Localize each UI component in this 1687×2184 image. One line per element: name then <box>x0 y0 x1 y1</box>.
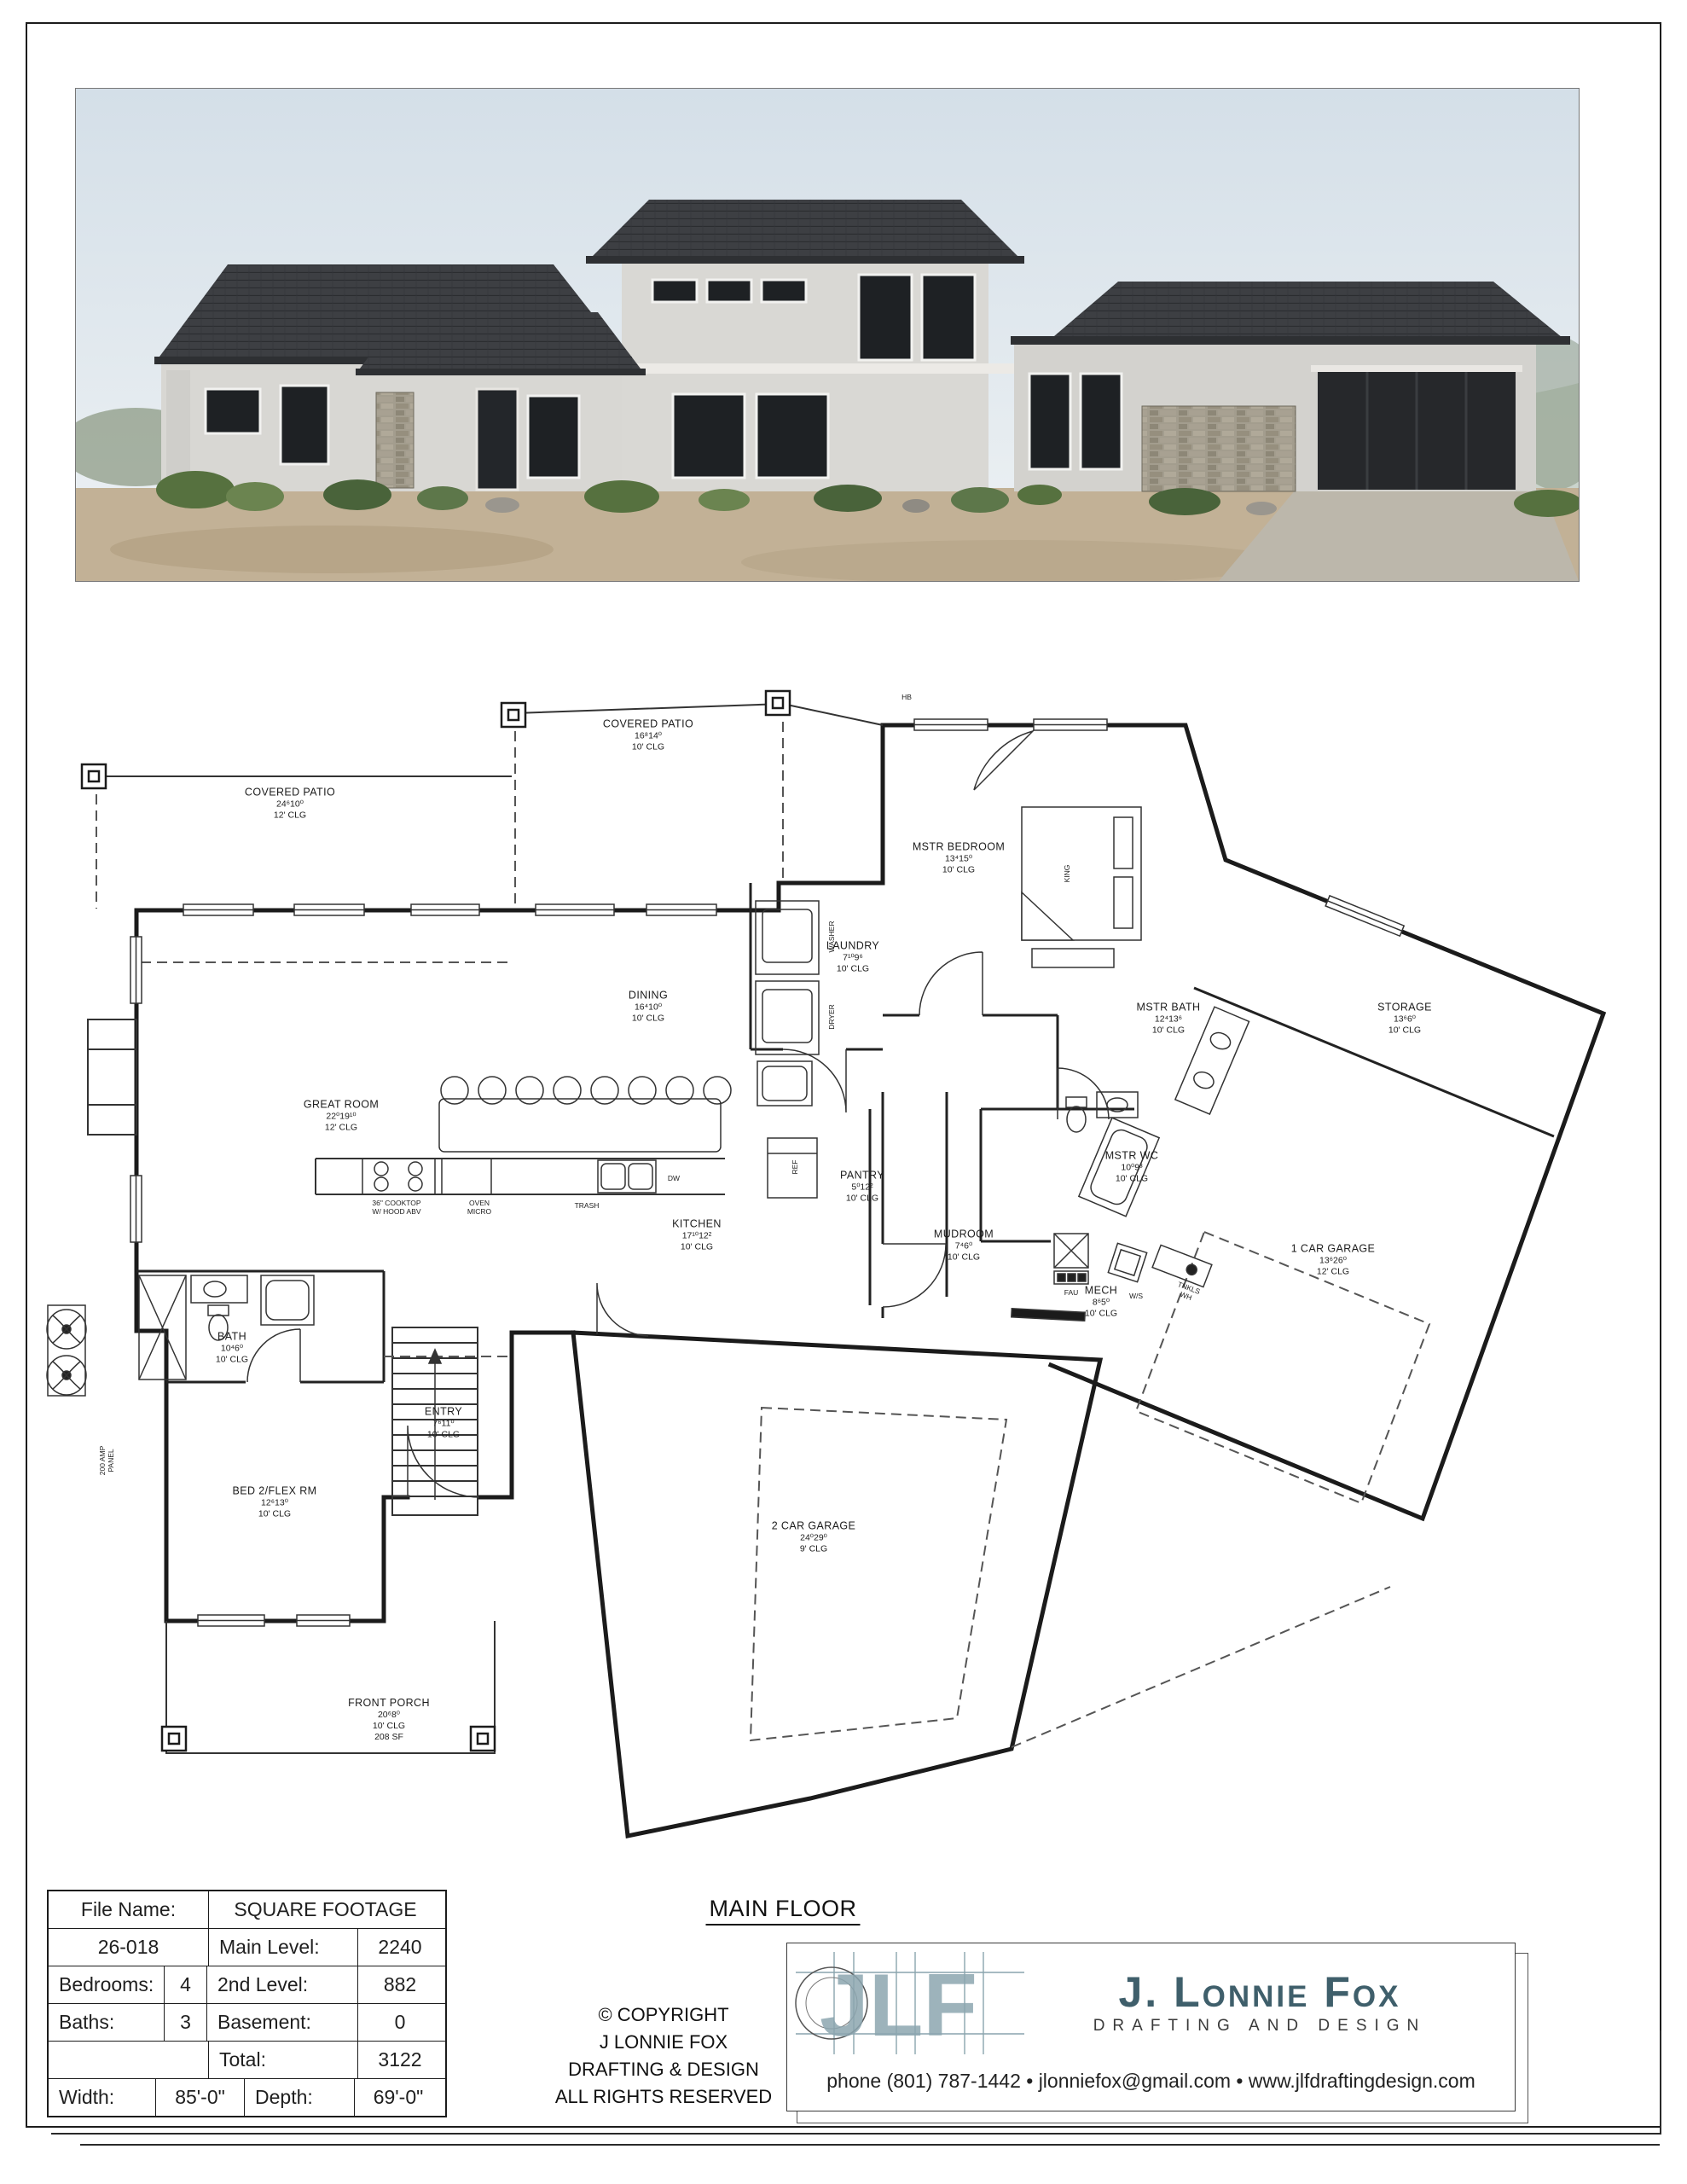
basement-label: Basement: <box>207 2004 358 2041</box>
electrical-panel-label: 200 AMP PANEL <box>99 1446 116 1476</box>
room-area: 208 SF <box>348 1732 430 1743</box>
panel-line2: PANEL <box>107 1446 116 1476</box>
main-level-label: Main Level: <box>209 1929 358 1966</box>
main-level-value: 2240 <box>358 1929 442 1966</box>
water-softener-label: W/S <box>1129 1292 1143 1301</box>
room-name: MSTR BATH <box>1137 1002 1201 1014</box>
plan-title: MAIN FLOOR <box>705 1896 860 1926</box>
room-label-entry: ENTRY 7⁶11⁰ 10' CLG <box>425 1406 462 1441</box>
copyright-line3: DRAFTING & DESIGN <box>555 2056 772 2083</box>
file-name-value: 26-018 <box>49 1929 209 1966</box>
room-dims: 17¹⁰12² <box>672 1231 722 1242</box>
room-ceiling: 10' CLG <box>934 1252 994 1263</box>
sf-header: SQUARE FOOTAGE <box>209 1891 442 1928</box>
room-name: PANTRY <box>840 1170 884 1182</box>
room-dims: 16⁴10⁰ <box>629 1002 668 1014</box>
room-name: MSTR WC <box>1105 1150 1159 1163</box>
room-label-pantry: PANTRY 5⁰12² 10' CLG <box>840 1170 884 1205</box>
room-label-bath: BATH 10⁴6⁰ 10' CLG <box>216 1331 248 1366</box>
room-name: GREAT ROOM <box>304 1099 379 1112</box>
room-dims: 24⁶10⁰ <box>245 799 335 810</box>
depth-label: Depth: <box>245 2079 355 2116</box>
room-ceiling: 10' CLG <box>1105 1174 1159 1185</box>
room-label-two-car-garage: 2 CAR GARAGE 24⁰29⁰ 9' CLG <box>772 1520 856 1555</box>
room-label-great-room: GREAT ROOM 22⁰19¹⁰ 12' CLG <box>304 1099 379 1134</box>
micro-label: MICRO <box>467 1208 491 1217</box>
room-dims: 10⁴6⁰ <box>216 1344 248 1355</box>
room-label-mech: MECH 8⁶5⁰ 10' CLG <box>1085 1285 1117 1320</box>
room-label-covered-patio-top: COVERED PATIO 16⁸14⁰ 10' CLG <box>603 718 693 753</box>
room-ceiling: 9' CLG <box>772 1544 856 1555</box>
depth-value: 69'-0" <box>355 2079 442 2116</box>
room-ceiling: 12' CLG <box>304 1123 379 1134</box>
total-label: Total: <box>209 2042 358 2078</box>
hose-bib-label: HB <box>901 694 912 702</box>
cooktop-note: 36" COOKTOP W/ HOOD ABV <box>372 1199 420 1217</box>
washer-label: WASHER <box>828 921 837 953</box>
room-dims: 22⁰19¹⁰ <box>304 1112 379 1123</box>
king-bed-label: KING <box>1064 865 1072 883</box>
copyright-line2: J LONNIE FOX <box>555 2029 772 2056</box>
bedrooms-label: Bedrooms: <box>49 1966 165 2003</box>
room-label-mstr-bath: MSTR BATH 12⁴13⁶ 10' CLG <box>1137 1002 1201 1037</box>
room-ceiling: 10' CLG <box>672 1242 722 1253</box>
room-label-kitchen: KITCHEN 17¹⁰12² 10' CLG <box>672 1218 722 1253</box>
bedrooms-value: 4 <box>165 1966 207 2003</box>
room-label-front-porch: FRONT PORCH 20⁶8⁰ 10' CLG 208 SF <box>348 1697 430 1743</box>
copyright-line1: © COPYRIGHT <box>555 2001 772 2029</box>
room-name: BATH <box>216 1331 248 1344</box>
dishwasher-label: DW <box>668 1175 680 1183</box>
room-label-storage: STORAGE 13⁶6⁰ 10' CLG <box>1377 1002 1432 1037</box>
cooktop-note-line2: W/ HOOD ABV <box>372 1208 420 1217</box>
room-name: BED 2/FLEX RM <box>233 1485 317 1498</box>
refrigerator-label: REF <box>791 1160 800 1175</box>
total-value: 3122 <box>358 2042 442 2078</box>
room-dims: 7¹⁰9⁶ <box>826 953 879 964</box>
room-dims: 16⁸14⁰ <box>603 731 693 742</box>
room-dims: 12⁶13⁰ <box>233 1498 317 1509</box>
room-dims: 7⁴6⁰ <box>934 1241 994 1252</box>
room-name: KITCHEN <box>672 1218 722 1231</box>
room-dims: 10⁰9³ <box>1105 1163 1159 1174</box>
dryer-label: DRYER <box>828 1004 837 1030</box>
room-name: MUDROOM <box>934 1228 994 1241</box>
baths-label: Baths: <box>49 2004 165 2041</box>
room-dims: 8⁶5⁰ <box>1085 1298 1117 1309</box>
room-label-mudroom: MUDROOM 7⁴6⁰ 10' CLG <box>934 1228 994 1263</box>
room-label-mstr-wc: MSTR WC 10⁰9³ 10' CLG <box>1105 1150 1159 1185</box>
room-name: FRONT PORCH <box>348 1697 430 1710</box>
blank-cell <box>49 2042 209 2078</box>
room-name: 2 CAR GARAGE <box>772 1520 856 1533</box>
room-ceiling: 10' CLG <box>840 1194 884 1205</box>
room-dims: 13⁴15⁰ <box>913 854 1005 865</box>
room-ceiling: 10' CLG <box>1137 1025 1201 1037</box>
file-name-label: File Name: <box>49 1891 209 1928</box>
room-name: DINING <box>629 990 668 1002</box>
room-name: 1 CAR GARAGE <box>1291 1243 1376 1256</box>
room-name: COVERED PATIO <box>603 718 693 731</box>
room-name: STORAGE <box>1377 1002 1432 1014</box>
trash-label: TRASH <box>575 1202 600 1211</box>
room-label-one-car-garage: 1 CAR GARAGE 13⁶26⁰ 12' CLG <box>1291 1243 1376 1278</box>
plan-sheet: COVERED PATIO 24⁶10⁰ 12' CLG COVERED PAT… <box>0 0 1687 2184</box>
second-level-value: 882 <box>358 1966 442 2003</box>
room-label-bed2-flex: BED 2/FLEX RM 12⁶13⁰ 10' CLG <box>233 1485 317 1520</box>
room-label-covered-patio-left: COVERED PATIO 24⁶10⁰ 12' CLG <box>245 787 335 822</box>
company-name: J. Lonnie Fox <box>1030 1971 1489 2013</box>
room-ceiling: 10' CLG <box>425 1430 462 1441</box>
baths-value: 3 <box>165 2004 207 2041</box>
room-dims: 7⁶11⁰ <box>425 1419 462 1430</box>
logo-name-block: J. Lonnie Fox DRAFTING AND DESIGN <box>1030 1971 1515 2036</box>
logo-top-row: JLF J. Lonnie Fox DRAFTING AND DESIGN <box>787 1943 1515 2063</box>
room-dims: 5⁰12² <box>840 1182 884 1194</box>
company-tagline: DRAFTING AND DESIGN <box>1030 2017 1489 2036</box>
room-label-dining: DINING 16⁴10⁰ 10' CLG <box>629 990 668 1025</box>
room-label-mstr-bedroom: MSTR BEDROOM 13⁴15⁰ 10' CLG <box>913 841 1005 876</box>
width-value: 85'-0" <box>156 2079 245 2116</box>
room-ceiling: 10' CLG <box>216 1355 248 1366</box>
room-ceiling: 12' CLG <box>1291 1267 1376 1278</box>
room-dims: 12⁴13⁶ <box>1137 1014 1201 1025</box>
room-ceiling: 10' CLG <box>603 742 693 753</box>
company-contact: phone (801) 787-1442 • jlonniefox@gmail.… <box>787 2070 1515 2093</box>
second-level-label: 2nd Level: <box>207 1966 358 2003</box>
company-logo-block: JLF J. Lonnie Fox DRAFTING AND DESIGN ph… <box>786 1943 1516 2111</box>
oven-micro-label: OVEN MICRO <box>467 1199 491 1217</box>
room-name: MECH <box>1085 1285 1117 1298</box>
room-dims: 20⁶8⁰ <box>348 1710 430 1721</box>
room-name: ENTRY <box>425 1406 462 1419</box>
room-ceiling: 10' CLG <box>913 865 1005 876</box>
room-ceiling: 10' CLG <box>826 964 879 975</box>
room-ceiling: 10' CLG <box>348 1721 430 1732</box>
copyright-notice: © COPYRIGHT J LONNIE FOX DRAFTING & DESI… <box>555 2001 772 2111</box>
copyright-line4: ALL RIGHTS RESERVED <box>555 2083 772 2111</box>
room-name: COVERED PATIO <box>245 787 335 799</box>
room-dims: 13⁶26⁰ <box>1291 1256 1376 1267</box>
width-label: Width: <box>49 2079 156 2116</box>
room-ceiling: 10' CLG <box>1085 1309 1117 1320</box>
room-ceiling: 12' CLG <box>245 810 335 822</box>
fau-label: FAU <box>1064 1289 1079 1298</box>
title-block-table: File Name: SQUARE FOOTAGE 26-018 Main Le… <box>47 1890 447 2117</box>
jlf-monogram-icon: JLF <box>787 1947 1030 2059</box>
basement-value: 0 <box>358 2004 442 2041</box>
room-ceiling: 10' CLG <box>629 1014 668 1025</box>
room-ceiling: 10' CLG <box>1377 1025 1432 1037</box>
room-ceiling: 10' CLG <box>233 1509 317 1520</box>
room-dims: 13⁶6⁰ <box>1377 1014 1432 1025</box>
room-name: MSTR BEDROOM <box>913 841 1005 854</box>
floor-plan-drawing <box>0 0 1687 2184</box>
jlf-monogram-text: JLF <box>820 1956 977 2055</box>
room-dims: 24⁰29⁰ <box>772 1533 856 1544</box>
